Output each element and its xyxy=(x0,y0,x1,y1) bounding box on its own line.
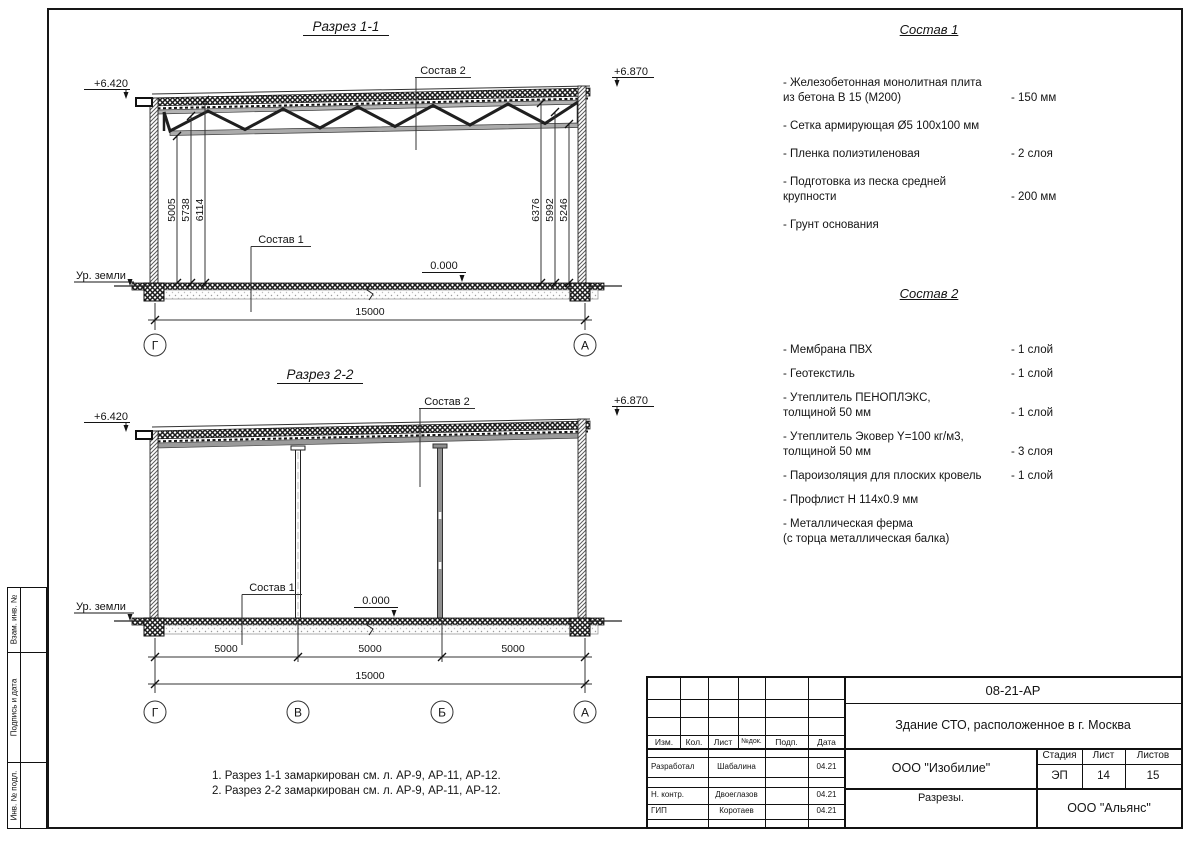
roof-edge-detail xyxy=(136,98,152,106)
notes: 1. Разрез 1-1 замаркирован см. л. АР-9, … xyxy=(212,769,501,799)
stamp-doc-number: 08-21-АР xyxy=(845,678,1181,703)
stamp-stage-label: Стадия xyxy=(1037,749,1082,764)
stamp-sheet-label: Лист xyxy=(1082,749,1125,764)
sostav2-item: - Профлист Н 114х0.9 мм xyxy=(783,493,1075,508)
drawing-sheet: Разрез 1-1 xyxy=(0,0,1191,842)
margin-box-podpis: Подпись и дата xyxy=(7,652,20,762)
axis-a-1-1: А xyxy=(581,339,589,353)
sostav1-item: - Сетка армирующая Ø5 100х100 мм xyxy=(783,119,1075,134)
ground-level-1-1: Ур. земли xyxy=(76,270,126,282)
stamp-name-2: Двоеглазов xyxy=(708,787,765,804)
stamp-role-2: Н. контр. xyxy=(651,787,707,804)
sostav2-item: - Мембрана ПВХ - 1 слой xyxy=(783,343,1075,358)
sostav2-item: - Металлическая ферма(с торца металличес… xyxy=(783,517,1075,547)
sostav2-list: Состав 2 - Мембрана ПВХ - 1 слой - Геоте… xyxy=(783,286,1075,547)
stamp-date-1: 04.21 xyxy=(808,757,845,777)
stamp-project-title: Здание СТО, расположенное в г. Москва xyxy=(845,703,1181,749)
margin-box-vzam: Взам. инв. № xyxy=(7,587,20,652)
sostav1-item: - Грунт основания xyxy=(783,218,1075,233)
leader-sostav2-1-1: Состав 2 xyxy=(420,65,466,77)
elev-right-2-2: +6.870 xyxy=(614,395,648,407)
stamp-sheets-label: Листов xyxy=(1125,749,1181,764)
dim-right-3: 5246 xyxy=(558,198,570,222)
section-2-2-title: Разрез 2-2 xyxy=(287,367,354,382)
section-1-1-title: Разрез 1-1 xyxy=(313,19,380,34)
zero-level-2-2: 0.000 xyxy=(362,595,390,607)
dim-left-3: 6114 xyxy=(194,199,206,222)
stamp-drawing-title: Разрезы. xyxy=(845,790,1037,808)
dim-right-2: 5992 xyxy=(544,198,556,222)
stamp-col-podp: Подп. xyxy=(765,735,808,749)
margin-box-inv: Инв. № подл. xyxy=(7,762,20,829)
stamp-sheets-value: 15 xyxy=(1125,764,1181,788)
sostav2-item: - Утеплитель ПЕНОПЛЭКС,толщиной 50 мм - … xyxy=(783,391,1075,421)
dim-right-1: 6376 xyxy=(530,198,542,222)
total-dim-1-1: 15000 xyxy=(355,306,384,318)
dim-left-1: 5005 xyxy=(166,198,178,222)
stamp-stage-value: ЭП xyxy=(1037,764,1082,788)
section-2-2: Разрез 2-2 xyxy=(74,367,654,723)
span-dim-2: 5000 xyxy=(358,643,382,655)
stamp-role-1: Разработал xyxy=(651,757,707,777)
leader-sostav2-2-2: Состав 2 xyxy=(424,396,470,408)
sostav2-item: - Геотекстиль - 1 слой xyxy=(783,367,1075,382)
truss-bottom-chord xyxy=(170,123,578,136)
leader-sostav1-1-1: Состав 1 xyxy=(258,234,304,246)
footing-right xyxy=(570,283,590,301)
stamp-sheet-value: 14 xyxy=(1082,764,1125,788)
stamp-col-ndok: №док. xyxy=(738,735,765,749)
roof-edge-detail-2 xyxy=(136,431,152,439)
stamp-col-list: Лист xyxy=(708,735,738,749)
leader-sostav1-2-2: Состав 1 xyxy=(249,582,295,594)
sostav1-item: - Пленка полиэтиленовая - 2 слоя xyxy=(783,147,1075,162)
stamp-contractor: ООО "Альянс" xyxy=(1037,790,1181,827)
span-dim-3: 5000 xyxy=(501,643,525,655)
stamp-name-1: Шабалина xyxy=(708,757,765,777)
stamp-company: ООО "Изобилие" xyxy=(845,749,1037,788)
stamp-role-3: ГИП xyxy=(651,804,707,819)
axis-g-1-1: Г xyxy=(152,339,159,353)
sostav1-list: Состав 1 - Железобетонная монолитная пли… xyxy=(783,22,1075,233)
wall-left-2 xyxy=(150,431,158,618)
axis-b-2-2: Б xyxy=(438,706,446,720)
column-b xyxy=(438,448,443,618)
stamp-name-3: Коротаев xyxy=(708,804,765,819)
zero-level-1-1: 0.000 xyxy=(430,260,458,272)
sand-layer xyxy=(146,290,598,299)
sostav2-item: - Утеплитель Эковер Y=100 кг/м3,толщиной… xyxy=(783,430,1075,460)
stamp-date-2: 04.21 xyxy=(808,787,845,804)
wall-right xyxy=(578,86,586,283)
note-1: 1. Разрез 1-1 замаркирован см. л. АР-9, … xyxy=(212,769,501,784)
title-block: Изм. Кол. Лист №док. Подп. Дата Разработ… xyxy=(646,676,1183,829)
ground-level-2-2: Ур. земли xyxy=(76,601,126,613)
stamp-date-3: 04.21 xyxy=(808,804,845,819)
sostav1-item: - Железобетонная монолитная плитаиз бето… xyxy=(783,76,1075,106)
span-dim-1: 5000 xyxy=(214,643,238,655)
footing-right-2 xyxy=(570,618,590,636)
wall-left xyxy=(150,98,158,283)
dim-left-2: 5738 xyxy=(180,198,192,222)
sostav1-title: Состав 1 xyxy=(900,22,959,37)
elev-left-2-2: +6.420 xyxy=(94,411,128,423)
stamp-col-izm: Изм. xyxy=(648,735,680,749)
note-2: 2. Разрез 2-2 замаркирован см. л. АР-9, … xyxy=(212,784,501,799)
wall-right-2 xyxy=(578,419,586,618)
sand-layer-2 xyxy=(146,625,598,634)
axis-v-2-2: В xyxy=(294,706,302,720)
sostav1-item: - Подготовка из песка среднейкрупности -… xyxy=(783,175,1075,205)
elev-right-1-1: +6.870 xyxy=(614,66,648,78)
axis-a-2-2: А xyxy=(581,706,589,720)
axis-g-2-2: Г xyxy=(152,706,159,720)
elev-left-1-1: +6.420 xyxy=(94,78,128,90)
total-dim-2-2: 15000 xyxy=(355,670,384,682)
sostav2-item: - Пароизоляция для плоских кровель - 1 с… xyxy=(783,469,1075,484)
stamp-col-kol: Кол. xyxy=(680,735,708,749)
stamp-col-data: Дата xyxy=(808,735,845,749)
sostav2-title: Состав 2 xyxy=(900,286,959,301)
section-1-1: Разрез 1-1 xyxy=(74,19,654,356)
